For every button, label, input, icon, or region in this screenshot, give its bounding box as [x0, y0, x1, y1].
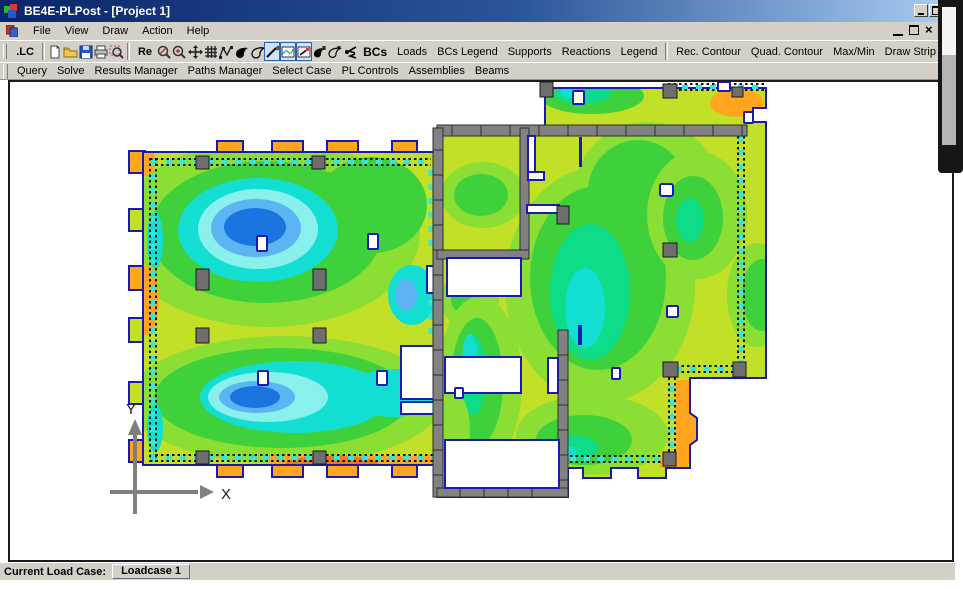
draw-strip-button[interactable]: Draw Strip	[880, 42, 941, 61]
mesh-icon	[218, 45, 233, 59]
open-file-button[interactable]	[63, 42, 78, 61]
zoom-window-icon	[109, 45, 124, 59]
results-manager-button[interactable]: Results Manager	[90, 62, 183, 81]
query-button[interactable]: Query	[12, 62, 52, 81]
pan-button[interactable]	[188, 42, 203, 61]
app-icon	[4, 4, 19, 19]
secondary-toolbar: Query Solve Results Manager Paths Manage…	[0, 62, 941, 80]
mesh-button[interactable]	[218, 42, 233, 61]
contour-plot-toggle[interactable]	[280, 42, 296, 61]
print-icon	[94, 45, 109, 59]
strip-box-icon	[297, 45, 311, 59]
minimize-button[interactable]	[914, 4, 928, 17]
grid-icon	[204, 45, 218, 59]
pan-icon	[188, 45, 203, 59]
separator	[665, 43, 668, 60]
menu-file[interactable]: File	[26, 23, 58, 39]
new-file-button[interactable]	[48, 42, 63, 61]
minimize-icon	[918, 13, 924, 15]
overlapping-window-panel	[942, 7, 956, 55]
reactions-button[interactable]: Reactions	[557, 42, 616, 61]
zoom-window-button[interactable]	[109, 42, 124, 61]
ink-drop-outline-icon	[250, 45, 264, 59]
zoom-extents-icon	[157, 45, 172, 59]
separator	[127, 43, 130, 60]
new-file-icon	[48, 45, 62, 59]
toolbar-grip[interactable]	[3, 44, 7, 59]
menu-draw[interactable]: Draw	[95, 23, 135, 39]
y-axis-label: Y	[126, 401, 136, 418]
paths-manager-button[interactable]: Paths Manager	[183, 62, 268, 81]
overlapping-window-scrollbar[interactable]	[942, 55, 956, 145]
title-bar: BE4E-PLPost - [Project 1] ×	[0, 0, 941, 22]
menu-bar: File View Draw Action Help	[0, 22, 941, 41]
save-icon	[79, 45, 93, 59]
menu-help[interactable]: Help	[180, 23, 217, 39]
contour-plot: Y X	[10, 82, 952, 560]
separator	[42, 43, 45, 60]
fill-contour-button[interactable]	[234, 42, 249, 61]
contour-box-icon	[281, 45, 295, 59]
document-icon	[6, 25, 18, 37]
right-slab	[433, 82, 787, 497]
solve-button[interactable]: Solve	[52, 62, 90, 81]
menu-view[interactable]: View	[58, 23, 96, 39]
zoom-in-button[interactable]	[172, 42, 187, 61]
rec-contour-button[interactable]: Rec. Contour	[671, 42, 746, 61]
toolbar-grip[interactable]	[3, 64, 8, 79]
legend-button[interactable]: Legend	[616, 42, 663, 61]
fill-hatch-button[interactable]	[312, 42, 327, 61]
strip-tool-toggle[interactable]	[264, 42, 280, 61]
mdi-child-controls: ×	[893, 24, 933, 36]
left-slab	[116, 139, 443, 477]
window-title: BE4E-PLPost - [Project 1]	[24, 4, 170, 18]
load-case-button[interactable]: .LC	[11, 42, 39, 61]
redraw-button[interactable]: Re	[133, 42, 157, 61]
bcs-legend-button[interactable]: BCs Legend	[432, 42, 503, 61]
grid-button[interactable]	[203, 42, 218, 61]
menu-action[interactable]: Action	[135, 23, 180, 39]
zoom-in-icon	[172, 45, 187, 59]
current-load-case-value[interactable]: Loadcase 1	[112, 564, 190, 579]
loads-button[interactable]: Loads	[392, 42, 432, 61]
pl-controls-button[interactable]: PL Controls	[337, 62, 404, 81]
child-close-button[interactable]: ×	[925, 25, 933, 35]
vectors-icon	[343, 45, 358, 59]
save-button[interactable]	[78, 42, 93, 61]
status-bar: Current Load Case: Loadcase 1	[0, 562, 955, 580]
beams-button[interactable]: Beams	[470, 62, 514, 81]
pen-icon	[265, 45, 279, 59]
max-min-button[interactable]: Max/Min	[828, 42, 880, 61]
vectors-button[interactable]	[343, 42, 358, 61]
zoom-extents-button[interactable]	[157, 42, 172, 61]
overlapping-window-edge	[938, 0, 963, 173]
main-toolbar: .LC Re BCs Loads BCs Legend Supports Rea…	[0, 40, 941, 62]
print-button[interactable]	[94, 42, 109, 61]
x-axis-label: X	[221, 486, 231, 503]
quad-contour-button[interactable]: Quad. Contour	[746, 42, 828, 61]
line-contour-button[interactable]	[249, 42, 264, 61]
plot-canvas[interactable]: Y X	[8, 80, 954, 562]
ink-drop-hatch-outline-icon	[328, 45, 342, 59]
supports-button[interactable]: Supports	[503, 42, 557, 61]
ink-drop-hatch-icon	[313, 45, 327, 59]
ink-drop-icon	[234, 45, 248, 59]
draw-strip-toggle[interactable]	[296, 42, 312, 61]
bcs-button[interactable]: BCs	[358, 42, 392, 61]
child-minimize-button[interactable]	[893, 24, 903, 36]
line-hatch-button[interactable]	[328, 42, 343, 61]
child-restore-button[interactable]	[909, 25, 919, 35]
assemblies-button[interactable]: Assemblies	[404, 62, 470, 81]
current-load-case-label: Current Load Case:	[4, 566, 106, 578]
select-case-button[interactable]: Select Case	[267, 62, 336, 81]
open-folder-icon	[63, 45, 78, 59]
